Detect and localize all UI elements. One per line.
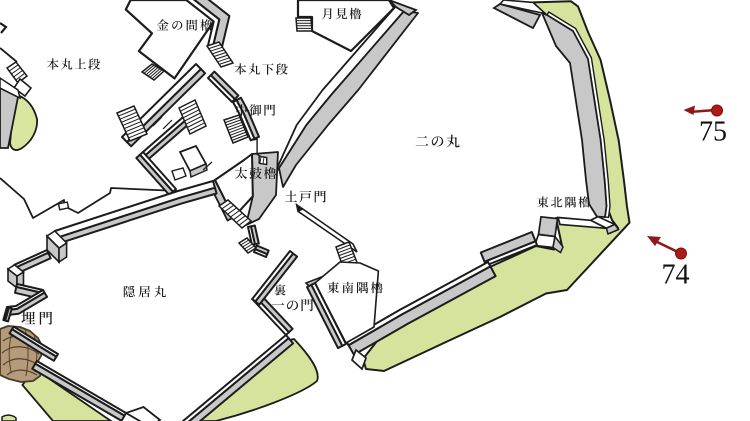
svg-text:75: 75	[699, 117, 727, 148]
svg-text:74: 74	[662, 260, 690, 291]
